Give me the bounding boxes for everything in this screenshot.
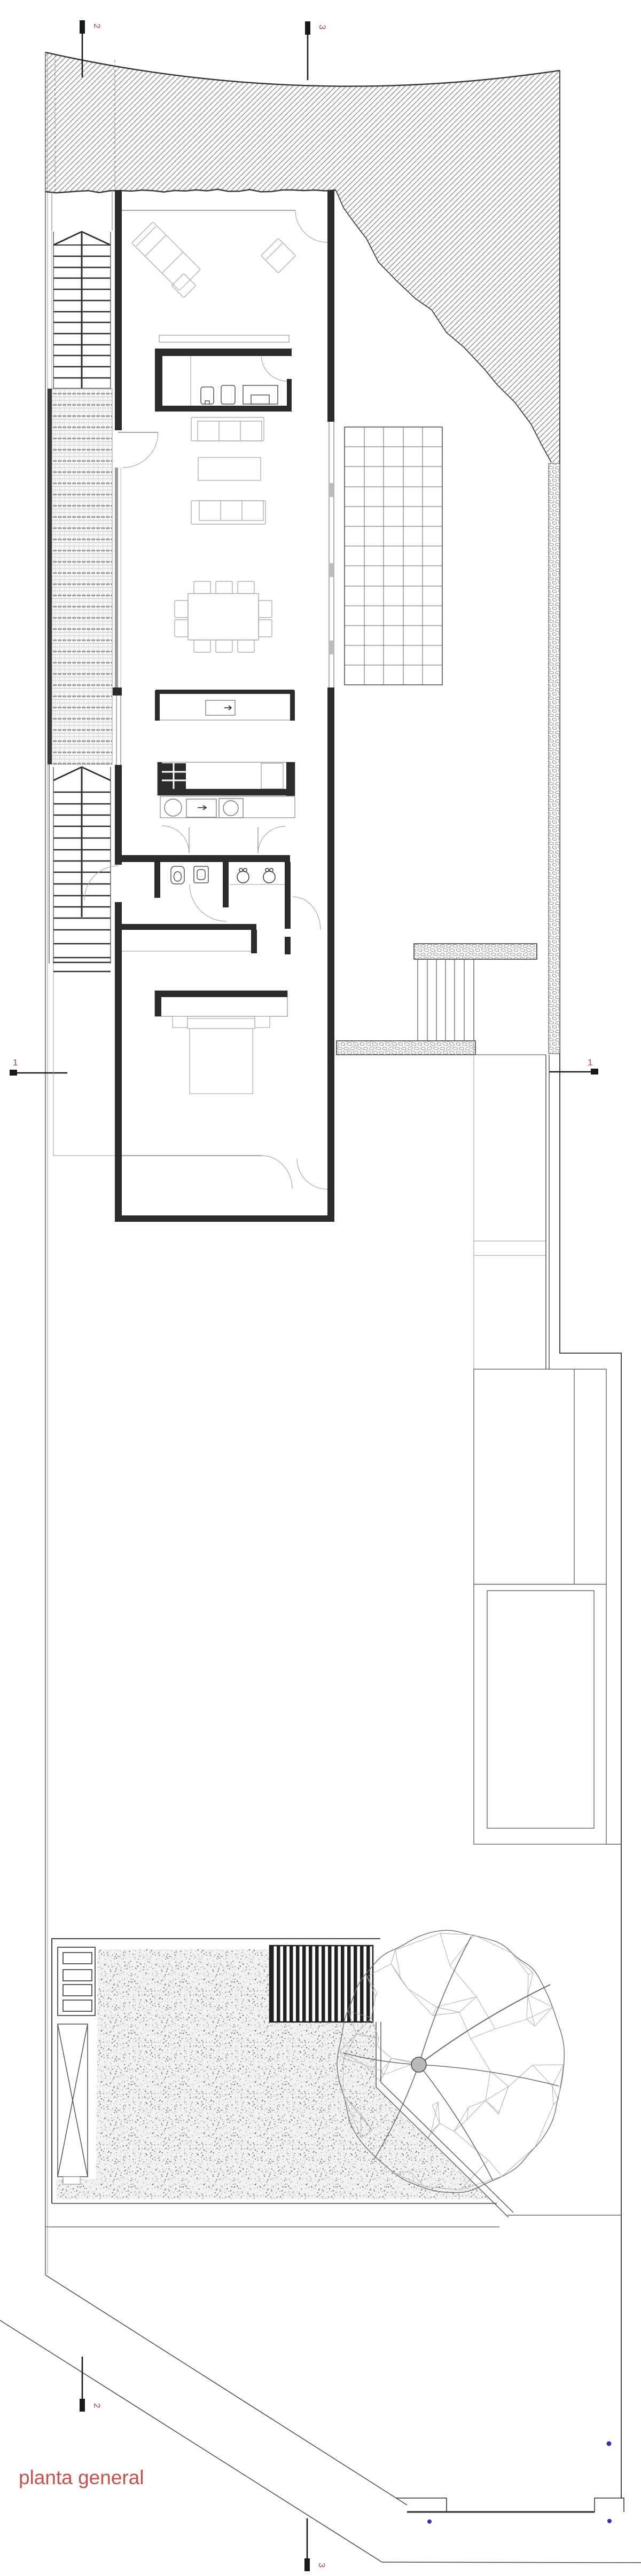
svg-text:3: 3 (317, 2563, 327, 2567)
svg-text:1: 1 (588, 1057, 592, 1068)
svg-text:1: 1 (13, 1057, 18, 1068)
svg-text:2: 2 (92, 23, 102, 28)
svg-text:2: 2 (92, 2403, 102, 2408)
svg-text:3: 3 (317, 25, 327, 29)
svg-text:planta general: planta general (19, 2467, 144, 2488)
